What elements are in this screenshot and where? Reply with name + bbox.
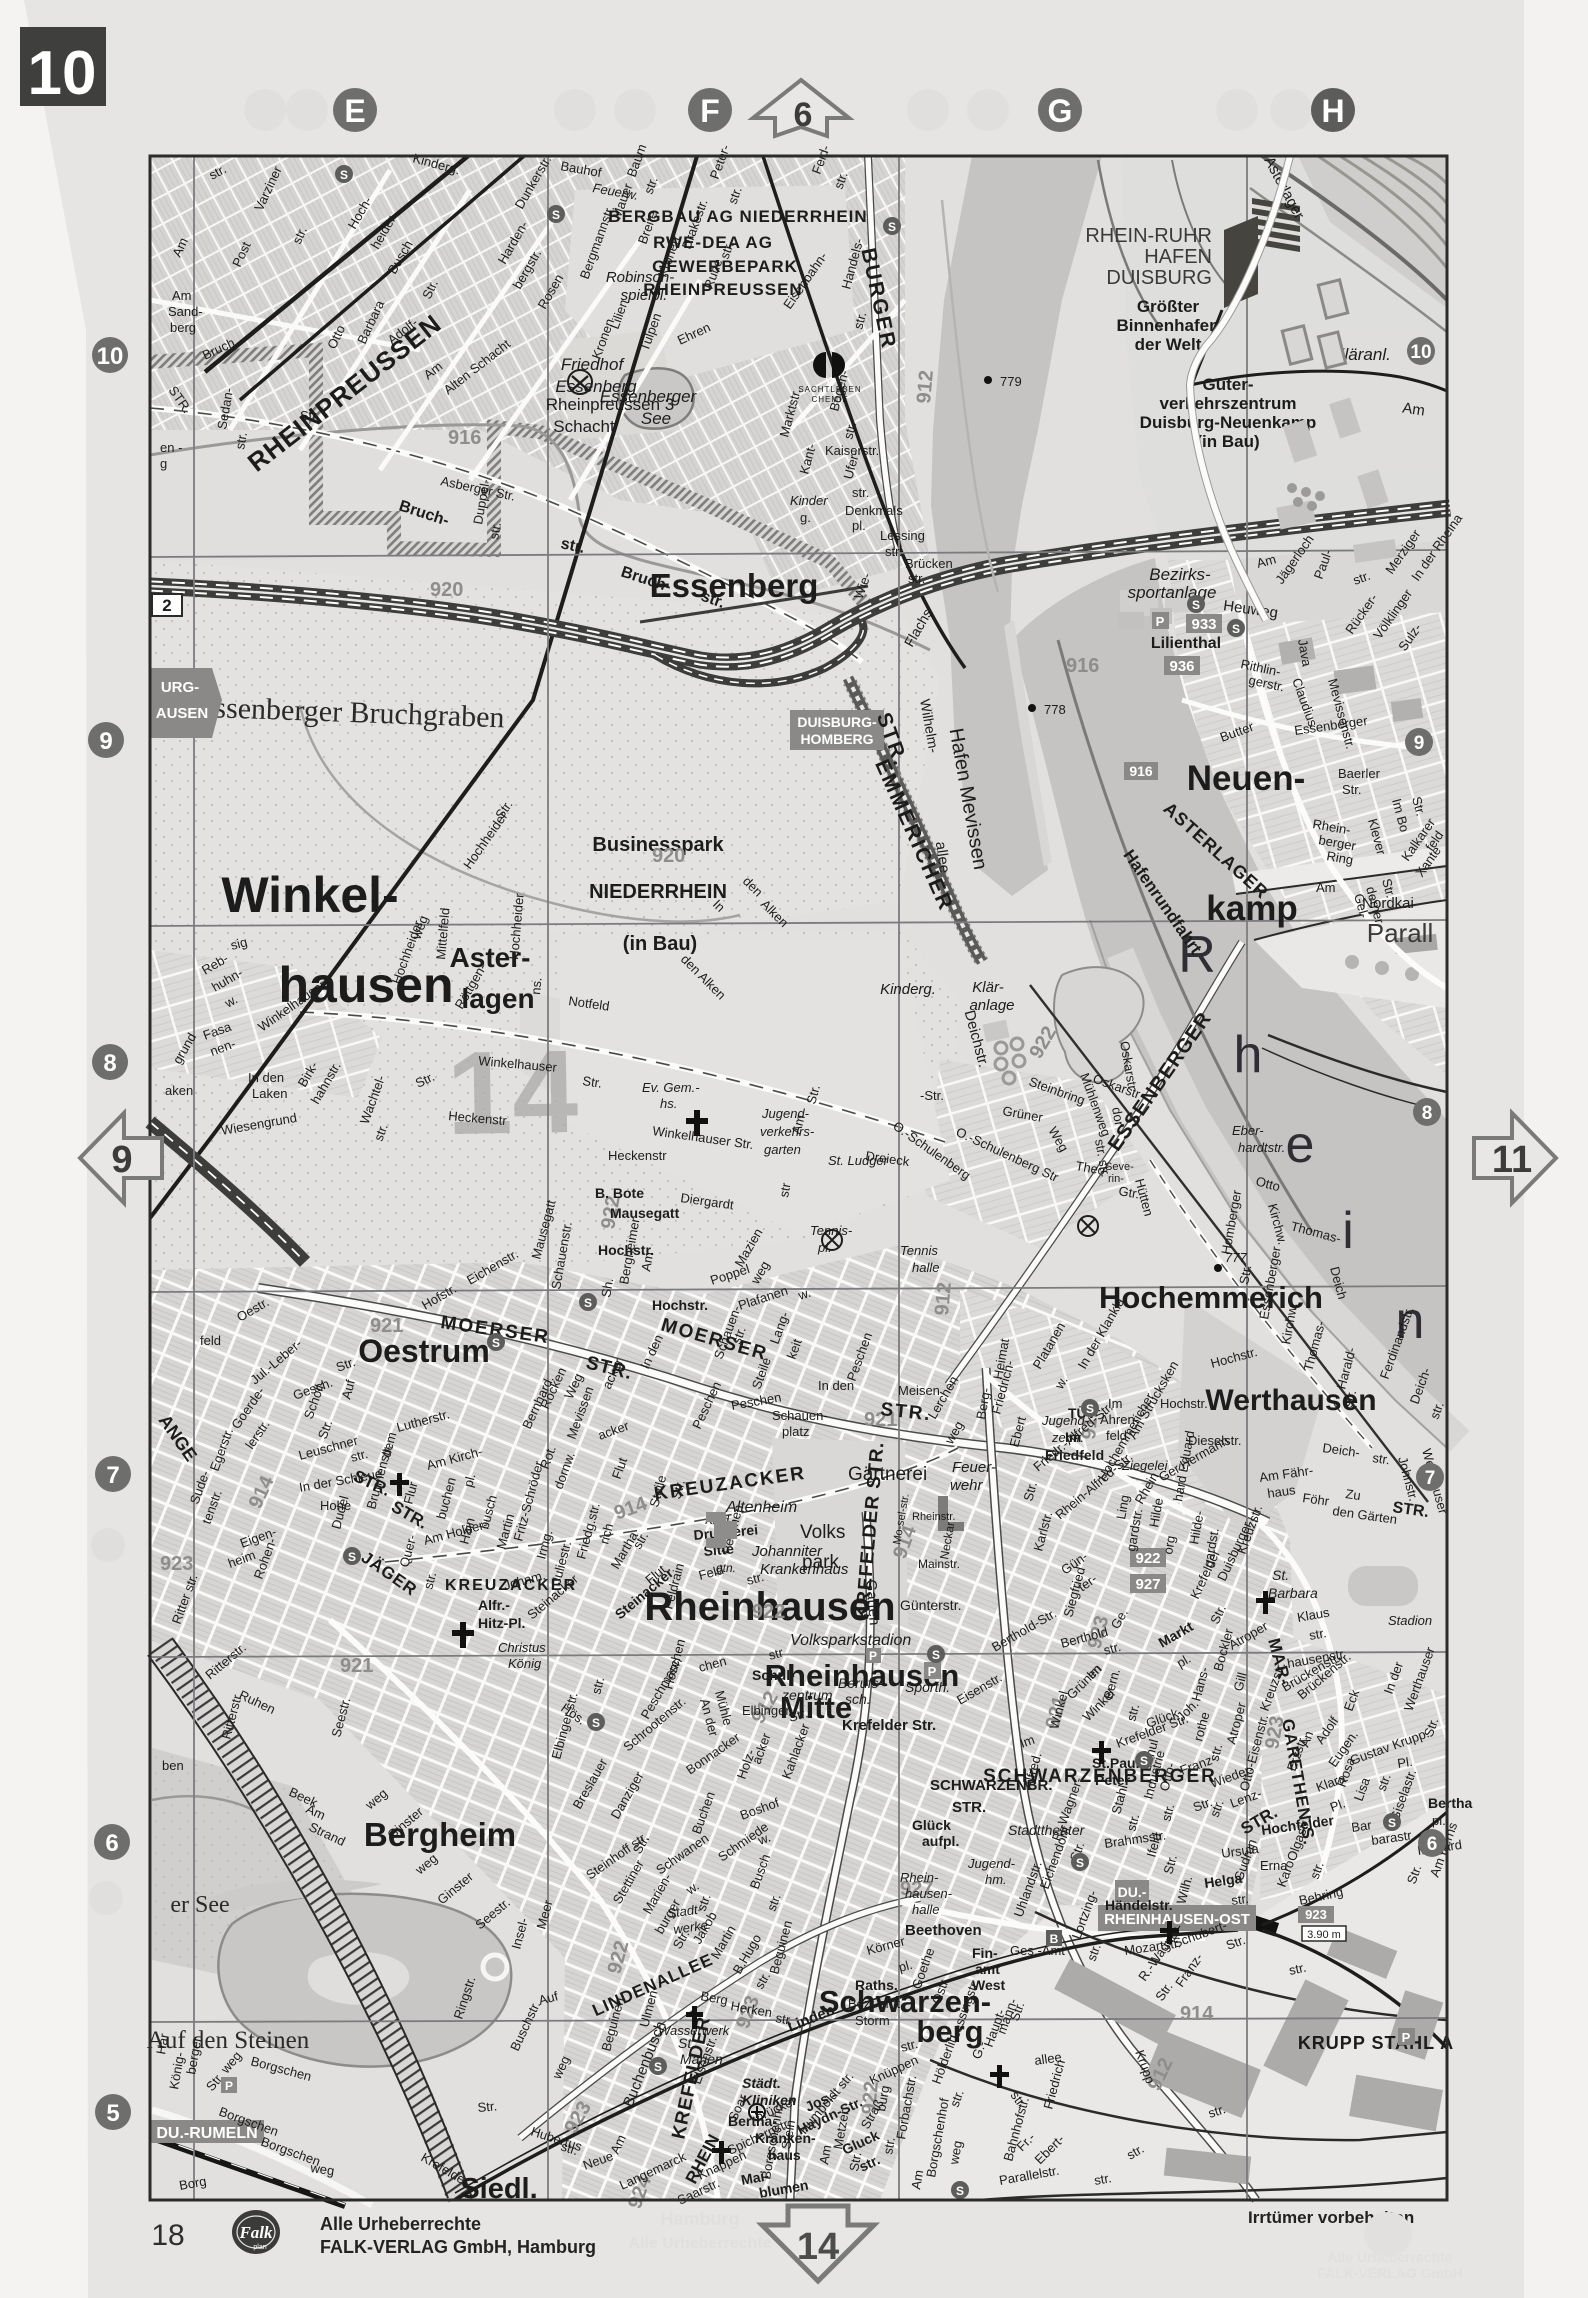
svg-text:str.: str. bbox=[1093, 2170, 1113, 2188]
svg-text:Essenberg: Essenberg bbox=[650, 567, 819, 604]
svg-text:2: 2 bbox=[162, 596, 171, 615]
svg-text:KRUPP STAHL A: KRUPP STAHL A bbox=[1298, 2033, 1454, 2053]
svg-text:FALK-VERLAG GmbH: FALK-VERLAG GmbH bbox=[1317, 2265, 1462, 2281]
svg-text:Str.: Str. bbox=[1342, 782, 1362, 797]
svg-text:9: 9 bbox=[111, 1139, 132, 1181]
svg-text:916: 916 bbox=[1066, 655, 1099, 677]
svg-text:7: 7 bbox=[1425, 1468, 1436, 1489]
svg-text:921: 921 bbox=[340, 1655, 373, 1677]
svg-text:18: 18 bbox=[151, 2219, 184, 2252]
svg-text:9: 9 bbox=[99, 728, 112, 755]
svg-text:S: S bbox=[956, 2184, 964, 2198]
svg-text:927: 927 bbox=[1135, 1576, 1160, 1593]
svg-text:str.: str. bbox=[774, 2010, 794, 2028]
svg-text:hardtstr.: hardtstr. bbox=[1238, 1140, 1285, 1155]
svg-text:Hitz-Pl.: Hitz-Pl. bbox=[478, 1615, 525, 1631]
svg-text:Volks: Volks bbox=[800, 1522, 845, 1543]
svg-text:P: P bbox=[1156, 614, 1165, 629]
svg-text:Hochstr.: Hochstr. bbox=[1160, 1396, 1208, 1411]
svg-text:Altenheim: Altenheim bbox=[725, 1499, 797, 1516]
svg-text:922: 922 bbox=[752, 1601, 785, 1623]
svg-text:Krefelder Str.: Krefelder Str. bbox=[842, 1717, 936, 1734]
svg-text:Beethoven: Beethoven bbox=[905, 1922, 982, 1939]
svg-text:hs.: hs. bbox=[660, 1096, 677, 1111]
svg-text:Meisen: Meisen bbox=[898, 1383, 940, 1398]
svg-text:B: B bbox=[1050, 1932, 1059, 1946]
svg-text:Tennis: Tennis bbox=[900, 1243, 938, 1258]
svg-text:922: 922 bbox=[1135, 1550, 1160, 1567]
svg-text:779: 779 bbox=[1000, 374, 1022, 389]
svg-text:H: H bbox=[1321, 93, 1344, 129]
svg-text:Winkel-: Winkel- bbox=[221, 867, 398, 923]
svg-text:Schacht: Schacht bbox=[553, 417, 615, 436]
svg-text:Schul-: Schul- bbox=[752, 1667, 795, 1683]
svg-text:Sporth.: Sporth. bbox=[905, 1679, 950, 1695]
svg-text:S: S bbox=[1192, 598, 1200, 612]
svg-text:hausen-: hausen- bbox=[905, 1886, 953, 1901]
svg-text:Elbinger: Elbinger bbox=[742, 1703, 790, 1718]
svg-text:Alle Urheberrechte: Alle Urheberrechte bbox=[628, 2235, 771, 2252]
svg-text:Am: Am bbox=[1401, 400, 1426, 420]
svg-text:feld: feld bbox=[200, 1333, 221, 1348]
svg-text:Johanniter: Johanniter bbox=[751, 1543, 823, 1560]
svg-text:RHEIN-RUHR: RHEIN-RUHR bbox=[1085, 225, 1212, 247]
svg-text:Brücken: Brücken bbox=[905, 556, 953, 571]
svg-text:6: 6 bbox=[1427, 1834, 1438, 1855]
svg-text:10: 10 bbox=[97, 343, 124, 370]
svg-text:Neuen-: Neuen- bbox=[1187, 759, 1306, 798]
svg-text:8: 8 bbox=[103, 1050, 116, 1077]
svg-text:Storm: Storm bbox=[855, 2013, 890, 2028]
svg-text:DUISBURG: DUISBURG bbox=[1106, 267, 1212, 289]
svg-text:hm.: hm. bbox=[985, 1872, 1007, 1887]
svg-text:B. Bote: B. Bote bbox=[595, 1185, 644, 1201]
svg-text:Gärtnerei: Gärtnerei bbox=[848, 1464, 927, 1485]
svg-text:ns.: ns. bbox=[528, 977, 544, 996]
svg-text:Ev. Gem.-: Ev. Gem.- bbox=[642, 1080, 700, 1095]
svg-text:aufpl.: aufpl. bbox=[922, 1833, 959, 1849]
svg-text:aken: aken bbox=[165, 1083, 193, 1098]
svg-text:10: 10 bbox=[28, 39, 97, 108]
svg-text:wehr: wehr bbox=[950, 1477, 984, 1494]
svg-text:Stadion: Stadion bbox=[1388, 1613, 1432, 1628]
svg-text:5: 5 bbox=[106, 2100, 119, 2127]
svg-text:Alfr.-: Alfr.- bbox=[478, 1597, 510, 1613]
svg-text:S: S bbox=[340, 168, 348, 182]
svg-text:Kinderg.: Kinderg. bbox=[880, 981, 936, 998]
svg-text:St.: St. bbox=[678, 2035, 695, 2051]
svg-text:936: 936 bbox=[1169, 658, 1194, 675]
svg-text:plan: plan bbox=[253, 2244, 266, 2251]
svg-text:amt: amt bbox=[975, 1961, 1000, 1977]
svg-text:HOMBERG: HOMBERG bbox=[800, 731, 873, 747]
svg-text:Auf den Steinen: Auf den Steinen bbox=[147, 2027, 310, 2054]
svg-text:Am: Am bbox=[1316, 880, 1336, 895]
svg-text:gtn.: gtn. bbox=[716, 1561, 736, 1575]
svg-text:6: 6 bbox=[794, 96, 813, 134]
svg-text:König: König bbox=[508, 1656, 542, 1671]
svg-text:Volksparkstadion: Volksparkstadion bbox=[790, 1632, 911, 1649]
svg-text:en -: en - bbox=[160, 440, 182, 455]
svg-text:haus: haus bbox=[768, 2147, 801, 2163]
svg-text:S: S bbox=[492, 1336, 500, 1350]
svg-text:St.: St. bbox=[1272, 1567, 1289, 1583]
svg-text:10: 10 bbox=[1410, 342, 1431, 363]
svg-text:Pl.: Pl. bbox=[1396, 1754, 1413, 1771]
svg-text:str.: str. bbox=[908, 571, 925, 586]
svg-text:Berufs-: Berufs- bbox=[838, 1675, 883, 1691]
svg-text:Städt.: Städt. bbox=[742, 2075, 781, 2091]
svg-text:Sand-: Sand- bbox=[168, 304, 203, 319]
svg-text:14: 14 bbox=[797, 2226, 839, 2268]
svg-text:E: E bbox=[344, 93, 365, 129]
svg-text:933: 933 bbox=[1191, 616, 1216, 633]
svg-text:-Str.: -Str. bbox=[920, 1088, 944, 1103]
svg-text:Bezirks-: Bezirks- bbox=[1149, 565, 1211, 584]
svg-text:S: S bbox=[654, 2060, 662, 2074]
svg-text:g: g bbox=[160, 456, 167, 471]
svg-text:912: 912 bbox=[931, 1281, 956, 1316]
svg-text:7: 7 bbox=[106, 1462, 119, 1489]
svg-text:HAFEN: HAFEN bbox=[1144, 246, 1212, 268]
svg-text:i: i bbox=[1342, 1202, 1354, 1260]
svg-text:Jugend-: Jugend- bbox=[967, 1856, 1016, 1871]
svg-text:923: 923 bbox=[1305, 1907, 1327, 1922]
svg-text:Str.: Str. bbox=[582, 1073, 603, 1091]
svg-text:Rhein-: Rhein- bbox=[900, 1870, 939, 1885]
svg-text:S: S bbox=[1388, 1816, 1396, 1830]
svg-text:S: S bbox=[888, 220, 896, 234]
svg-text:(in Bau): (in Bau) bbox=[623, 933, 697, 955]
svg-text:Bertha: Bertha bbox=[1428, 1795, 1473, 1811]
svg-text:Str.: Str. bbox=[300, 408, 320, 423]
svg-text:P: P bbox=[928, 1664, 937, 1679]
svg-text:Fin-: Fin- bbox=[972, 1945, 998, 1961]
svg-text:URG-: URG- bbox=[161, 679, 199, 696]
svg-text:Jugend-: Jugend- bbox=[761, 1106, 810, 1121]
svg-text:halle: halle bbox=[912, 1902, 939, 1917]
svg-text:Klär-: Klär- bbox=[972, 979, 1003, 996]
svg-text:916: 916 bbox=[448, 427, 481, 449]
svg-text:F: F bbox=[700, 93, 720, 129]
svg-text:S: S bbox=[1232, 622, 1240, 636]
svg-text:zentrum: zentrum bbox=[781, 1687, 833, 1703]
svg-text:Denkmals: Denkmals bbox=[845, 503, 903, 518]
svg-text:Günterstr.: Günterstr. bbox=[900, 1597, 961, 1613]
svg-text:P: P bbox=[1402, 2030, 1411, 2045]
svg-text:pl.: pl. bbox=[852, 518, 866, 533]
svg-text:14: 14 bbox=[446, 1026, 580, 1160]
svg-text:921: 921 bbox=[370, 1315, 403, 1337]
svg-text:Krankenhaus: Krankenhaus bbox=[760, 1561, 849, 1578]
svg-text:S: S bbox=[584, 1296, 592, 1310]
svg-text:G: G bbox=[1048, 93, 1073, 129]
svg-text:h: h bbox=[1234, 1026, 1263, 1084]
svg-text:verkehrs-: verkehrs- bbox=[760, 1124, 815, 1139]
svg-text:Bertha-: Bertha- bbox=[728, 2113, 777, 2129]
svg-text:Raths.: Raths. bbox=[855, 1977, 898, 1993]
svg-text:912: 912 bbox=[913, 369, 938, 404]
svg-text:3.90 m: 3.90 m bbox=[1307, 1929, 1341, 1941]
svg-text:777: 777 bbox=[1225, 1250, 1247, 1265]
svg-text:Baerler: Baerler bbox=[1338, 766, 1381, 781]
svg-text:Mausegatt: Mausegatt bbox=[610, 1205, 680, 1221]
svg-text:Schauen-: Schauen- bbox=[772, 1408, 828, 1423]
svg-text:NIEDERRHEIN: NIEDERRHEIN bbox=[589, 881, 727, 903]
svg-text:str.: str. bbox=[1372, 1450, 1391, 1467]
svg-text:str.: str. bbox=[852, 485, 869, 500]
svg-text:Hochstr.: Hochstr. bbox=[652, 1297, 708, 1313]
svg-text:Glück: Glück bbox=[912, 1817, 951, 1833]
svg-text:str.: str. bbox=[1308, 1625, 1328, 1643]
svg-text:DU.-RUMELN: DU.-RUMELN bbox=[156, 2125, 257, 2142]
svg-text:Rheinstr.: Rheinstr. bbox=[912, 1511, 955, 1523]
svg-text:Bez.-amt: Bez.-amt bbox=[848, 1996, 900, 2011]
svg-text:S: S bbox=[1140, 1754, 1148, 1768]
svg-text:Alle Urheberrechte: Alle Urheberrechte bbox=[320, 2214, 481, 2234]
svg-text:Peter: Peter bbox=[1095, 1772, 1131, 1788]
svg-text:Lessing: Lessing bbox=[880, 528, 925, 543]
svg-text:Zu: Zu bbox=[1345, 1486, 1362, 1503]
svg-text:str.: str. bbox=[1230, 1891, 1249, 1908]
svg-text:Str.: Str. bbox=[477, 2098, 498, 2115]
svg-text:er See: er See bbox=[170, 1892, 229, 1918]
svg-text:str.: str. bbox=[232, 431, 250, 451]
svg-text:778: 778 bbox=[1044, 702, 1066, 717]
svg-text:Heckenstr: Heckenstr bbox=[608, 1148, 667, 1163]
svg-text:Essenberger: Essenberger bbox=[600, 387, 698, 406]
svg-text:920: 920 bbox=[430, 579, 463, 601]
svg-text:Marien: Marien bbox=[680, 2051, 723, 2067]
svg-text:920: 920 bbox=[652, 845, 685, 867]
svg-text:halle: halle bbox=[912, 1260, 939, 1275]
svg-text:str.: str. bbox=[486, 521, 504, 541]
svg-text:ben: ben bbox=[162, 1758, 184, 1773]
svg-text:Eber-: Eber- bbox=[1232, 1123, 1264, 1138]
svg-text:Feuer-: Feuer- bbox=[952, 1459, 996, 1476]
svg-text:Barbara: Barbara bbox=[1268, 1585, 1318, 1601]
svg-text:West: West bbox=[972, 1977, 1006, 1993]
svg-text:Händelstr.: Händelstr. bbox=[1105, 1897, 1173, 1913]
svg-text:St. Ludger: St. Ludger bbox=[828, 1153, 889, 1168]
svg-text:(in Bau): (in Bau) bbox=[1196, 432, 1259, 451]
svg-text:der Welt: der Welt bbox=[1135, 335, 1202, 354]
svg-text:923: 923 bbox=[160, 1553, 193, 1575]
svg-text:DUISBURG-: DUISBURG- bbox=[797, 714, 877, 730]
svg-text:In den: In den bbox=[248, 1070, 284, 1085]
svg-text:11: 11 bbox=[1492, 1139, 1532, 1181]
svg-text:Christus: Christus bbox=[498, 1640, 546, 1655]
svg-text:str.: str. bbox=[885, 544, 902, 559]
svg-text:916: 916 bbox=[1129, 763, 1153, 779]
svg-text:sch.: sch. bbox=[845, 1691, 871, 1707]
svg-text:Stadttheater: Stadttheater bbox=[1008, 1822, 1086, 1838]
svg-text:verkehrszentrum: verkehrszentrum bbox=[1159, 394, 1296, 413]
svg-text:Binnenhafen: Binnenhafen bbox=[1117, 316, 1220, 335]
svg-text:Lilienthal: Lilienthal bbox=[1151, 635, 1221, 652]
svg-text:6: 6 bbox=[105, 1830, 118, 1857]
svg-text:Falk: Falk bbox=[238, 2223, 273, 2242]
svg-text:S: S bbox=[592, 1716, 600, 1730]
svg-text:S: S bbox=[348, 1550, 356, 1564]
svg-text:Kinder: Kinder bbox=[790, 493, 828, 508]
svg-text:Kliniken: Kliniken bbox=[742, 2092, 796, 2108]
svg-text:P: P bbox=[225, 2079, 233, 2093]
svg-text:Größter: Größter bbox=[1137, 297, 1200, 316]
svg-text:P: P bbox=[869, 1649, 877, 1663]
svg-text:S: S bbox=[552, 208, 560, 222]
svg-text:9: 9 bbox=[1414, 733, 1425, 754]
svg-text:8: 8 bbox=[1422, 1103, 1433, 1124]
svg-text:Hamburg: Hamburg bbox=[660, 2209, 739, 2229]
svg-text:S: S bbox=[1076, 1856, 1084, 1870]
svg-text:platz: platz bbox=[782, 1424, 809, 1439]
svg-text:STR.: STR. bbox=[952, 1799, 986, 1816]
svg-text:FALK-VERLAG GmbH, Hamburg: FALK-VERLAG GmbH, Hamburg bbox=[320, 2237, 596, 2257]
svg-text:AUSEN: AUSEN bbox=[156, 705, 209, 722]
svg-text:e: e bbox=[1286, 1116, 1315, 1174]
svg-text:berg: berg bbox=[170, 320, 196, 335]
svg-text:S: S bbox=[1086, 1402, 1094, 1416]
svg-text:g.: g. bbox=[800, 510, 811, 525]
svg-text:Laken: Laken bbox=[252, 1086, 287, 1101]
svg-text:S: S bbox=[932, 1648, 940, 1662]
svg-text:Oestrum: Oestrum bbox=[358, 1333, 490, 1369]
svg-text:garten: garten bbox=[764, 1142, 801, 1157]
svg-text:Seve-: Seve- bbox=[1105, 1161, 1134, 1173]
svg-text:Am: Am bbox=[172, 288, 192, 303]
svg-text:See: See bbox=[641, 409, 671, 428]
svg-text:914: 914 bbox=[1180, 2003, 1214, 2025]
